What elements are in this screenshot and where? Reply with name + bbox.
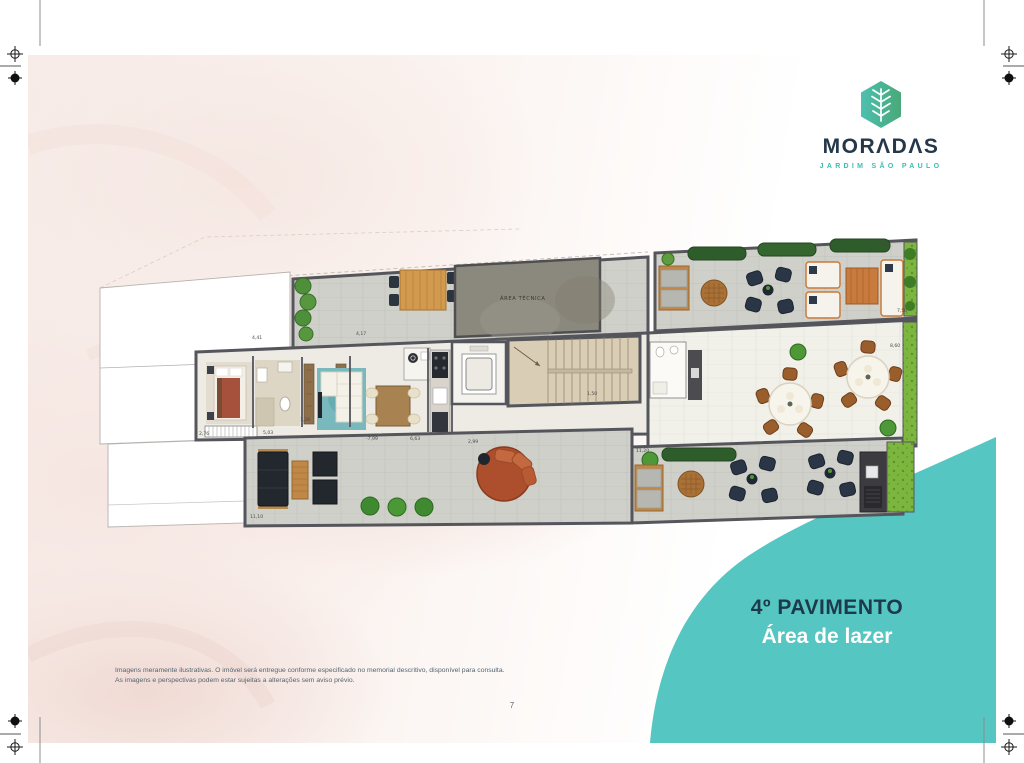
- area-tecnica-room: ÁREA TÉCNICA: [455, 258, 615, 342]
- shrubs: [361, 497, 433, 516]
- brand-subtitle: JARDIM SÃO PAULO: [781, 163, 981, 170]
- right-bottom-terrace: [630, 438, 903, 523]
- brochure-page: ÁREA TÉCNICA: [0, 0, 1024, 763]
- dimension-label: 5,03: [263, 430, 273, 436]
- area-tecnica-label: ÁREA TÉCNICA: [500, 294, 545, 302]
- plant: [880, 420, 896, 436]
- bathroom: [255, 360, 300, 426]
- bottom-left-terrace: [245, 429, 632, 526]
- dimension-label: 4,17: [356, 331, 366, 337]
- dimension-label: 11,10: [250, 514, 263, 520]
- disclaimer-line-1: Imagens meramente ilustrativas. O imóvel…: [115, 666, 535, 676]
- dimension-label: 2,99: [468, 439, 478, 445]
- page-number: 7: [462, 701, 562, 710]
- dimension-label: 7,50: [897, 308, 907, 314]
- floor-subtitle: Área de lazer: [692, 623, 962, 652]
- dimension-label: 0,60: [878, 241, 888, 247]
- dimension-label: 1,26: [300, 417, 310, 423]
- kitchen: [430, 350, 450, 434]
- service-area: [404, 348, 430, 380]
- dimension-label: 2,76: [199, 431, 209, 437]
- rattan-ottoman: [678, 471, 704, 497]
- plant: [790, 344, 806, 360]
- dimension-label: 6,63: [410, 436, 420, 442]
- floor-plan: ÁREA TÉCNICA: [95, 225, 925, 530]
- right-top-terrace: [655, 239, 916, 331]
- living-room: [317, 368, 366, 430]
- title-block: 4º PAVIMENTO Área de lazer: [692, 594, 962, 652]
- dimension-label: 4,41: [252, 335, 262, 341]
- disclaimer: Imagens meramente ilustrativas. O imóvel…: [115, 666, 535, 686]
- dimension-label: 8,60: [890, 343, 900, 349]
- brand-name: MORΛDΛS: [781, 136, 981, 157]
- duct-panel: [691, 368, 699, 378]
- brand-logo: MORΛDΛS JARDIM SÃO PAULO: [781, 80, 981, 170]
- elevator: [452, 342, 506, 404]
- wood-lounger: [635, 465, 663, 511]
- staircase: [508, 336, 640, 406]
- dimension-label: 11,20: [636, 448, 649, 454]
- rattan-ottoman: [701, 280, 727, 306]
- leaf-hexagon-icon: [858, 80, 904, 130]
- grill-counter: [860, 452, 888, 512]
- wc-room: [650, 342, 686, 398]
- balcony-louver: [205, 426, 257, 437]
- wood-lounger: [659, 266, 689, 310]
- armchair: [313, 452, 337, 476]
- dimension-label: -7,99: [366, 436, 378, 442]
- outdoor-sofa: [258, 449, 288, 509]
- floor-title: 4º PAVIMENTO: [692, 594, 962, 623]
- armchair: [313, 480, 337, 504]
- coffee-table: [292, 461, 308, 499]
- disclaimer-line-2: As imagens e perspectivas podem estar su…: [115, 676, 535, 686]
- dimension-label: 1,50: [587, 391, 597, 397]
- hedge: [662, 448, 736, 461]
